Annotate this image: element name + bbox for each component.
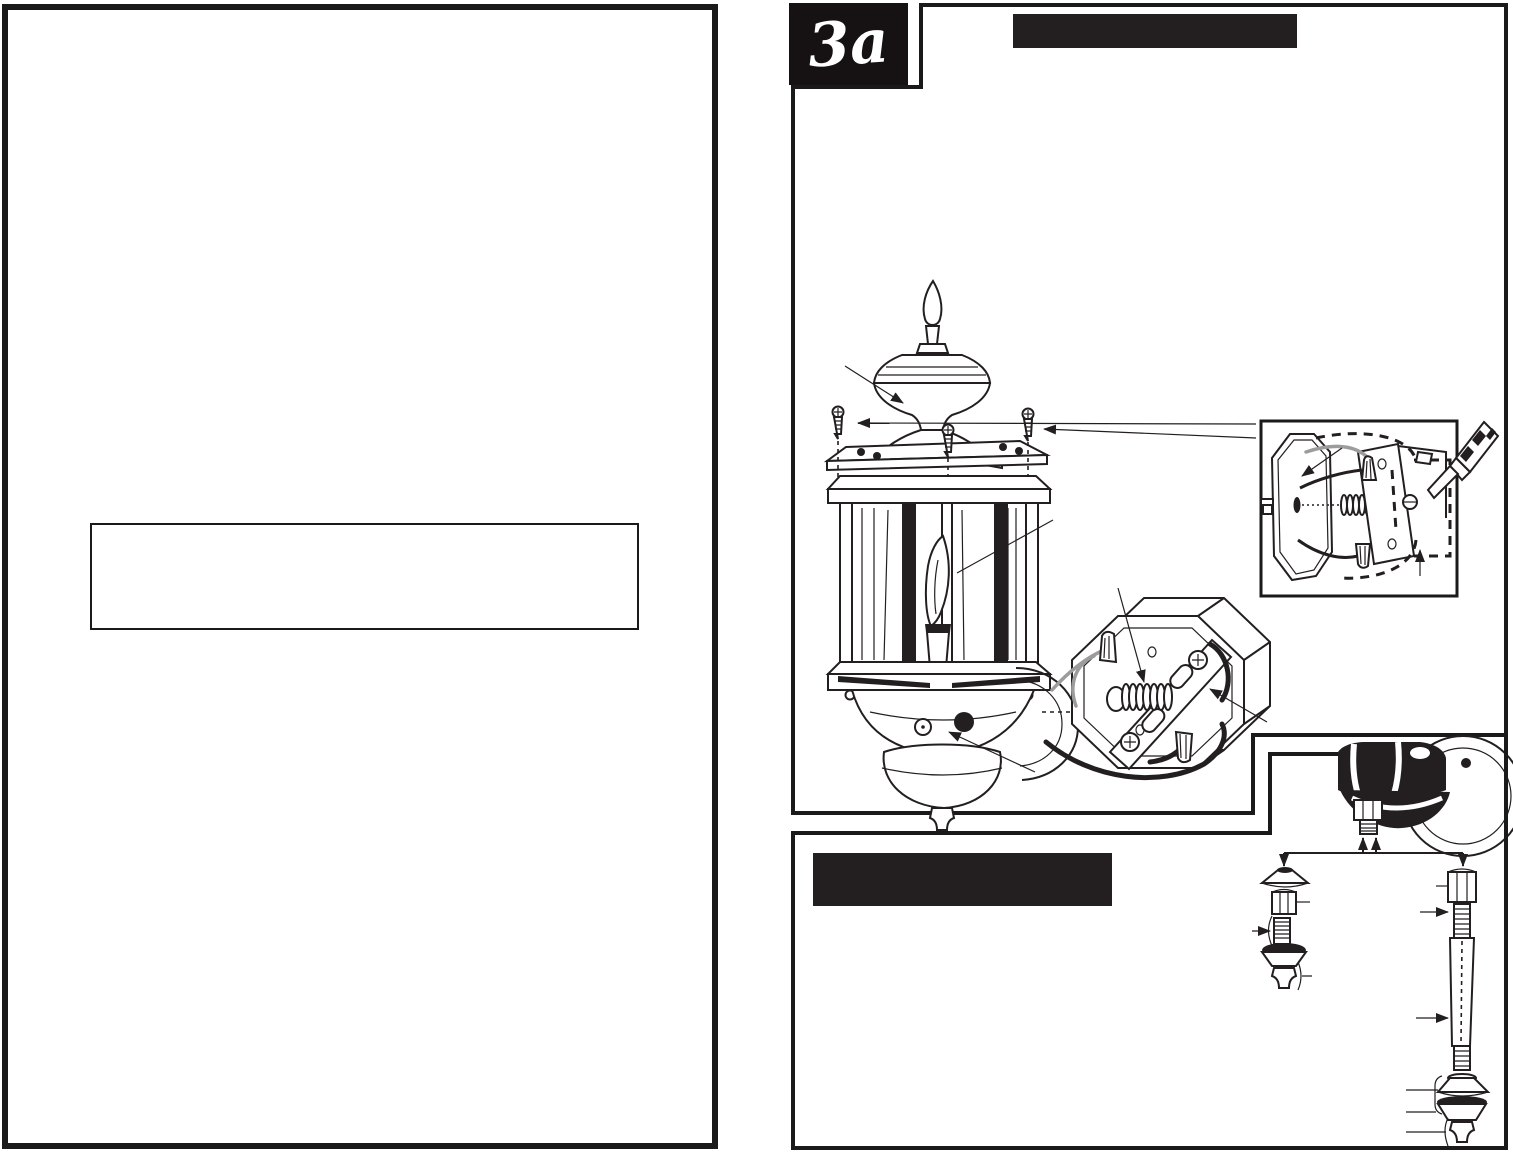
short-finial-hardware — [1252, 867, 1312, 990]
step-badge: 3a — [789, 3, 908, 85]
subsection-header-bar — [813, 853, 1112, 906]
hardware-parts-diagram — [1252, 736, 1513, 1146]
junction-box-diagram — [1046, 598, 1270, 778]
main-lantern-diagram — [827, 281, 1086, 830]
step-badge-label: 3a — [806, 11, 891, 76]
section-header-bar — [1013, 14, 1297, 48]
wiring-inset-diagram — [1261, 421, 1498, 596]
manual-page: 3a — [0, 0, 1513, 1155]
threaded-nipple-spring — [1107, 684, 1172, 711]
long-stem-hardware — [1406, 869, 1488, 1146]
instruction-diagram-figure — [0, 0, 1513, 1155]
